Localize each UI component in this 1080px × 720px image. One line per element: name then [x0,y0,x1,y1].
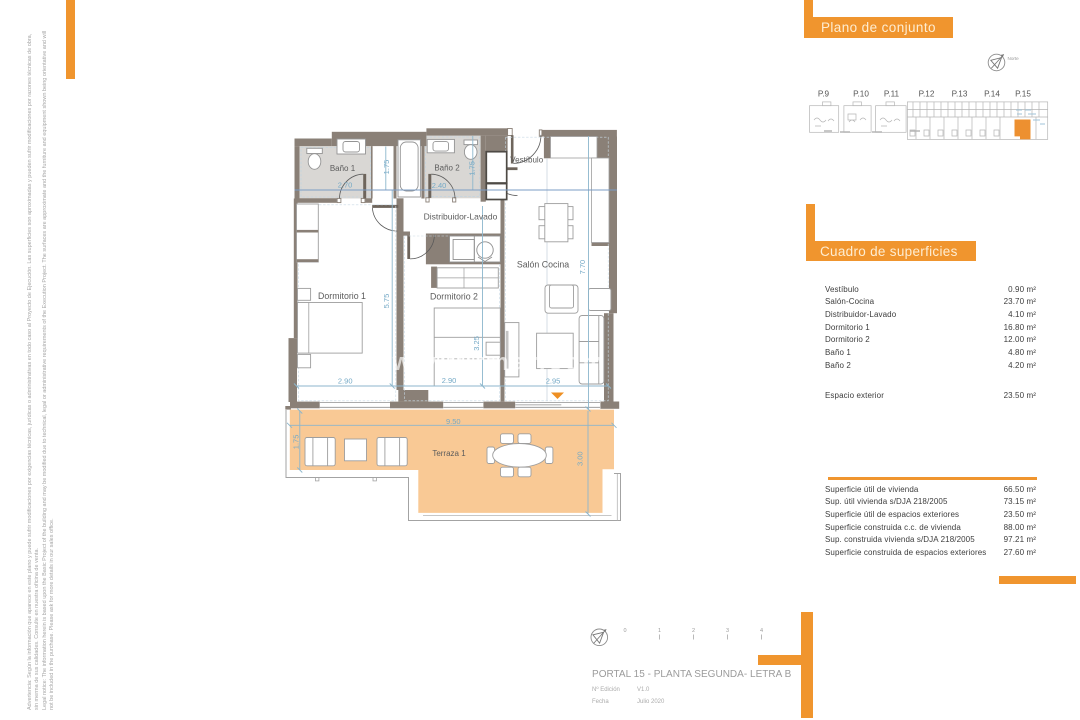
svg-text:Salón Cocina: Salón Cocina [517,260,569,270]
svg-text:www.vivirmar.com: www.vivirmar.com [348,349,607,376]
svg-text:3: 3 [726,628,729,634]
svg-text:P.12: P.12 [919,90,935,99]
svg-text:P.10: P.10 [853,90,869,99]
svg-text:7.70: 7.70 [578,260,587,275]
svg-text:2: 2 [692,628,695,634]
svg-text:P.11: P.11 [884,90,900,99]
svg-text:P.9: P.9 [818,90,830,99]
svg-text:Baño 1: Baño 1 [330,164,356,173]
svg-text:Norte: Norte [1008,56,1020,61]
svg-text:4: 4 [760,628,763,634]
svg-text:2.70: 2.70 [338,181,353,190]
svg-text:1: 1 [658,628,661,634]
svg-text:2.40: 2.40 [432,181,447,190]
svg-text:Dormitorio 2: Dormitorio 2 [430,292,478,302]
svg-text:1.75: 1.75 [382,160,391,175]
svg-text:Distribuidor-Lavado: Distribuidor-Lavado [424,211,498,221]
svg-text:Terraza 1: Terraza 1 [432,449,466,458]
svg-text:Vestíbulo: Vestíbulo [510,156,543,165]
svg-text:3.00: 3.00 [576,451,585,466]
svg-text:P.13: P.13 [952,90,968,99]
svg-text:2.90: 2.90 [442,376,457,385]
svg-text:P.15: P.15 [1015,90,1031,99]
svg-text:2.95: 2.95 [546,377,561,386]
svg-text:Baño 2: Baño 2 [434,164,460,173]
svg-text:P.14: P.14 [984,90,1000,99]
svg-text:1.75: 1.75 [292,435,301,450]
svg-text:2.90: 2.90 [338,377,353,386]
svg-text:1.75: 1.75 [468,161,477,176]
svg-text:9.50: 9.50 [446,417,461,426]
svg-text:Dormitorio 1: Dormitorio 1 [318,291,366,301]
svg-text:0: 0 [623,628,626,634]
svg-text:5.75: 5.75 [382,294,391,309]
